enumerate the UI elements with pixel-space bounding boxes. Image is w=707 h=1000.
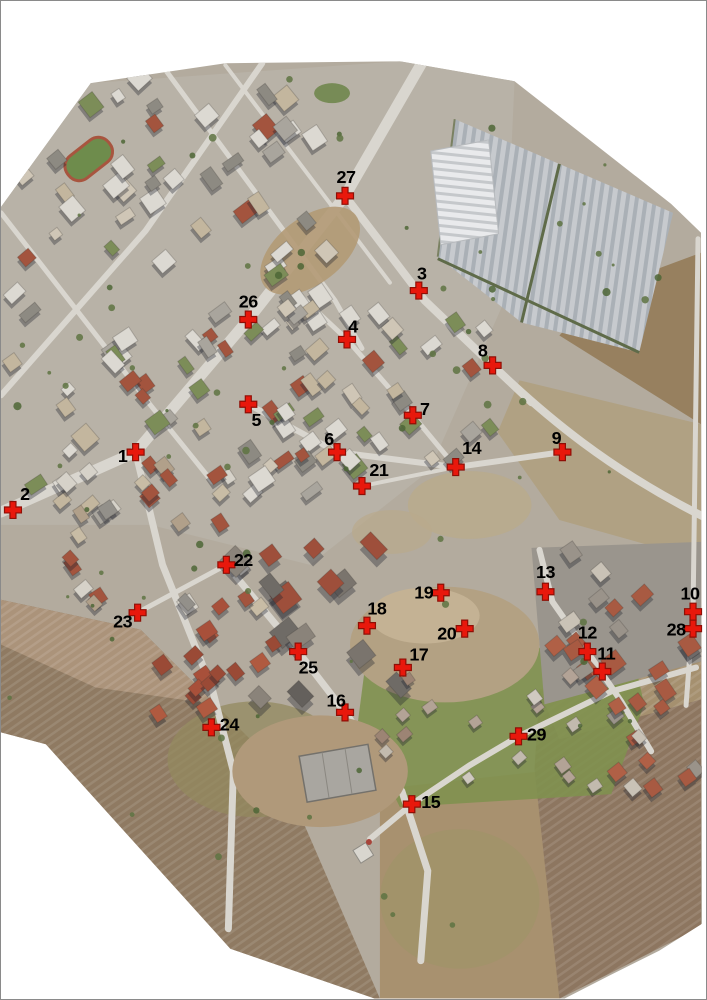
gcp-cross-icon xyxy=(447,459,464,476)
gcp-label: 23 xyxy=(113,612,132,632)
gcp-label: 9 xyxy=(552,428,562,448)
gcp-label: 14 xyxy=(462,438,481,458)
gcp-label: 20 xyxy=(437,624,456,644)
gcp-marker-14: 14 xyxy=(447,438,481,475)
gcp-marker-3: 3 xyxy=(410,264,427,299)
gcp-cross-icon xyxy=(432,584,449,601)
gcp-marker-1: 1 xyxy=(118,444,144,466)
gcp-label: 1 xyxy=(118,446,128,466)
gcp-label: 16 xyxy=(327,690,346,710)
gcp-label: 8 xyxy=(478,340,488,360)
gcp-marker-21: 21 xyxy=(354,460,389,494)
gcp-label: 22 xyxy=(234,550,253,570)
orthophoto-figure: 1234567891011121314151617181920212223242… xyxy=(0,0,707,1000)
gcp-marker-22: 22 xyxy=(218,550,253,573)
gcp-label: 24 xyxy=(220,714,239,734)
gcp-markers-layer: 1234567891011121314151617181920212223242… xyxy=(1,1,706,999)
gcp-cross-icon xyxy=(354,478,371,495)
gcp-label: 21 xyxy=(369,460,388,480)
gcp-marker-7: 7 xyxy=(404,399,430,423)
gcp-marker-11: 11 xyxy=(594,644,616,680)
gcp-cross-icon xyxy=(594,663,611,680)
gcp-marker-8: 8 xyxy=(478,340,501,373)
gcp-marker-24: 24 xyxy=(203,714,239,735)
gcp-label: 17 xyxy=(409,645,428,665)
gcp-marker-20: 20 xyxy=(437,620,473,643)
gcp-marker-26: 26 xyxy=(239,292,258,328)
gcp-cross-icon xyxy=(510,728,527,745)
gcp-cross-icon xyxy=(337,187,354,204)
gcp-marker-16: 16 xyxy=(327,690,354,720)
gcp-marker-4: 4 xyxy=(339,316,359,347)
gcp-cross-icon xyxy=(404,407,421,424)
gcp-marker-6: 6 xyxy=(324,429,345,460)
gcp-label: 10 xyxy=(681,584,700,604)
gcp-marker-18: 18 xyxy=(358,599,386,634)
gcp-label: 29 xyxy=(527,724,546,744)
gcp-cross-icon xyxy=(203,719,220,736)
gcp-label: 27 xyxy=(337,167,356,187)
gcp-cross-icon xyxy=(537,583,554,600)
gcp-marker-5: 5 xyxy=(240,396,262,430)
gcp-label: 25 xyxy=(299,658,318,678)
gcp-marker-23: 23 xyxy=(113,604,146,631)
gcp-cross-icon xyxy=(579,643,596,660)
gcp-marker-12: 12 xyxy=(578,623,597,660)
gcp-marker-2: 2 xyxy=(4,484,30,518)
gcp-cross-icon xyxy=(410,282,427,299)
gcp-cross-icon xyxy=(685,620,702,637)
gcp-label: 7 xyxy=(420,399,430,419)
gcp-cross-icon xyxy=(218,556,235,573)
gcp-marker-9: 9 xyxy=(552,428,571,460)
gcp-label: 11 xyxy=(597,644,615,664)
gcp-marker-15: 15 xyxy=(403,792,440,812)
gcp-marker-25: 25 xyxy=(290,643,318,677)
gcp-label: 15 xyxy=(421,792,440,812)
gcp-label: 28 xyxy=(667,620,686,640)
gcp-cross-icon xyxy=(685,603,702,620)
gcp-marker-10: 10 xyxy=(681,584,702,620)
gcp-label: 26 xyxy=(239,292,258,312)
gcp-cross-icon xyxy=(4,501,21,518)
gcp-label: 5 xyxy=(252,410,262,430)
gcp-marker-17: 17 xyxy=(394,645,428,676)
gcp-cross-icon xyxy=(240,311,257,328)
gcp-cross-icon xyxy=(358,617,375,634)
gcp-marker-27: 27 xyxy=(337,167,356,204)
gcp-cross-icon xyxy=(403,796,420,813)
gcp-cross-icon xyxy=(127,444,144,461)
gcp-marker-13: 13 xyxy=(536,562,555,600)
gcp-label: 18 xyxy=(367,599,386,619)
gcp-label: 2 xyxy=(20,484,30,504)
gcp-label: 6 xyxy=(324,429,334,449)
gcp-marker-19: 19 xyxy=(414,583,449,603)
gcp-marker-29: 29 xyxy=(510,724,546,744)
gcp-label: 13 xyxy=(536,562,555,582)
gcp-cross-icon xyxy=(456,620,473,637)
gcp-marker-28: 28 xyxy=(667,620,702,640)
gcp-label: 3 xyxy=(417,264,427,284)
gcp-label: 19 xyxy=(414,583,433,603)
gcp-label: 4 xyxy=(348,316,358,336)
gcp-label: 12 xyxy=(578,623,597,643)
